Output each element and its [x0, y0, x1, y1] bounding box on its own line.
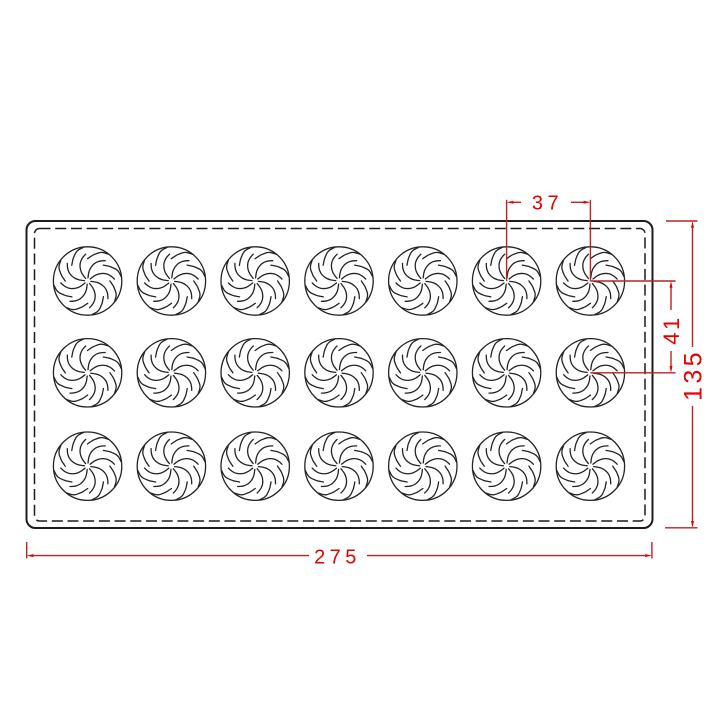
- svg-text:37: 37: [532, 192, 563, 214]
- svg-text:135: 135: [679, 349, 707, 401]
- svg-text:275: 275: [314, 546, 361, 568]
- svg-text:41: 41: [659, 315, 684, 344]
